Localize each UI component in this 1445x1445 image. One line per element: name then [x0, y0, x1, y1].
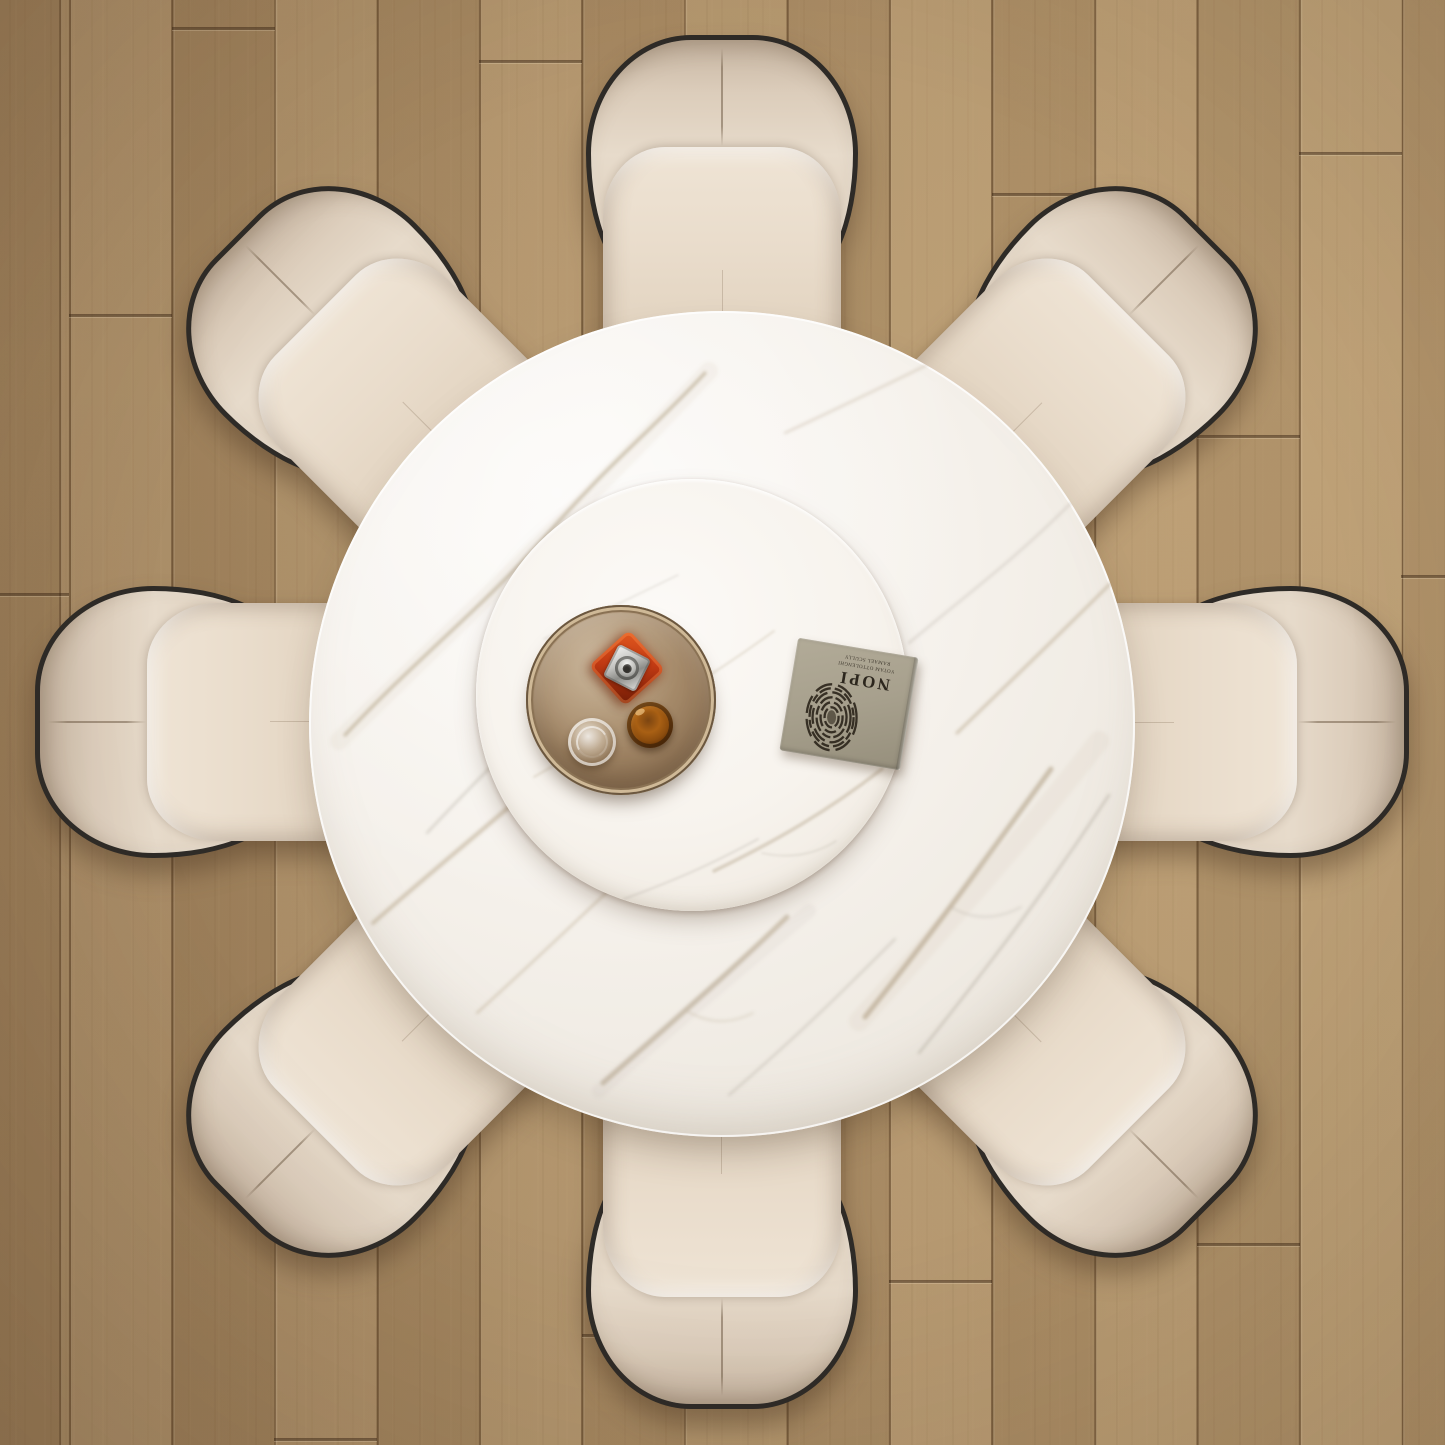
cookbook: NOPI YOTAM OTTOLENGHI RAMAEL SCULLY — [779, 638, 918, 771]
decanter-cap — [611, 652, 643, 684]
fingerprint-graphic — [798, 678, 865, 756]
backrest-stitch — [245, 245, 316, 316]
decanter-stopper — [603, 644, 651, 692]
whiskey-glass — [627, 702, 673, 748]
scene: NOPI YOTAM OTTOLENGHI RAMAEL SCULLY — [0, 0, 1445, 1445]
water-glass — [568, 718, 616, 766]
serving-tray — [526, 605, 716, 795]
